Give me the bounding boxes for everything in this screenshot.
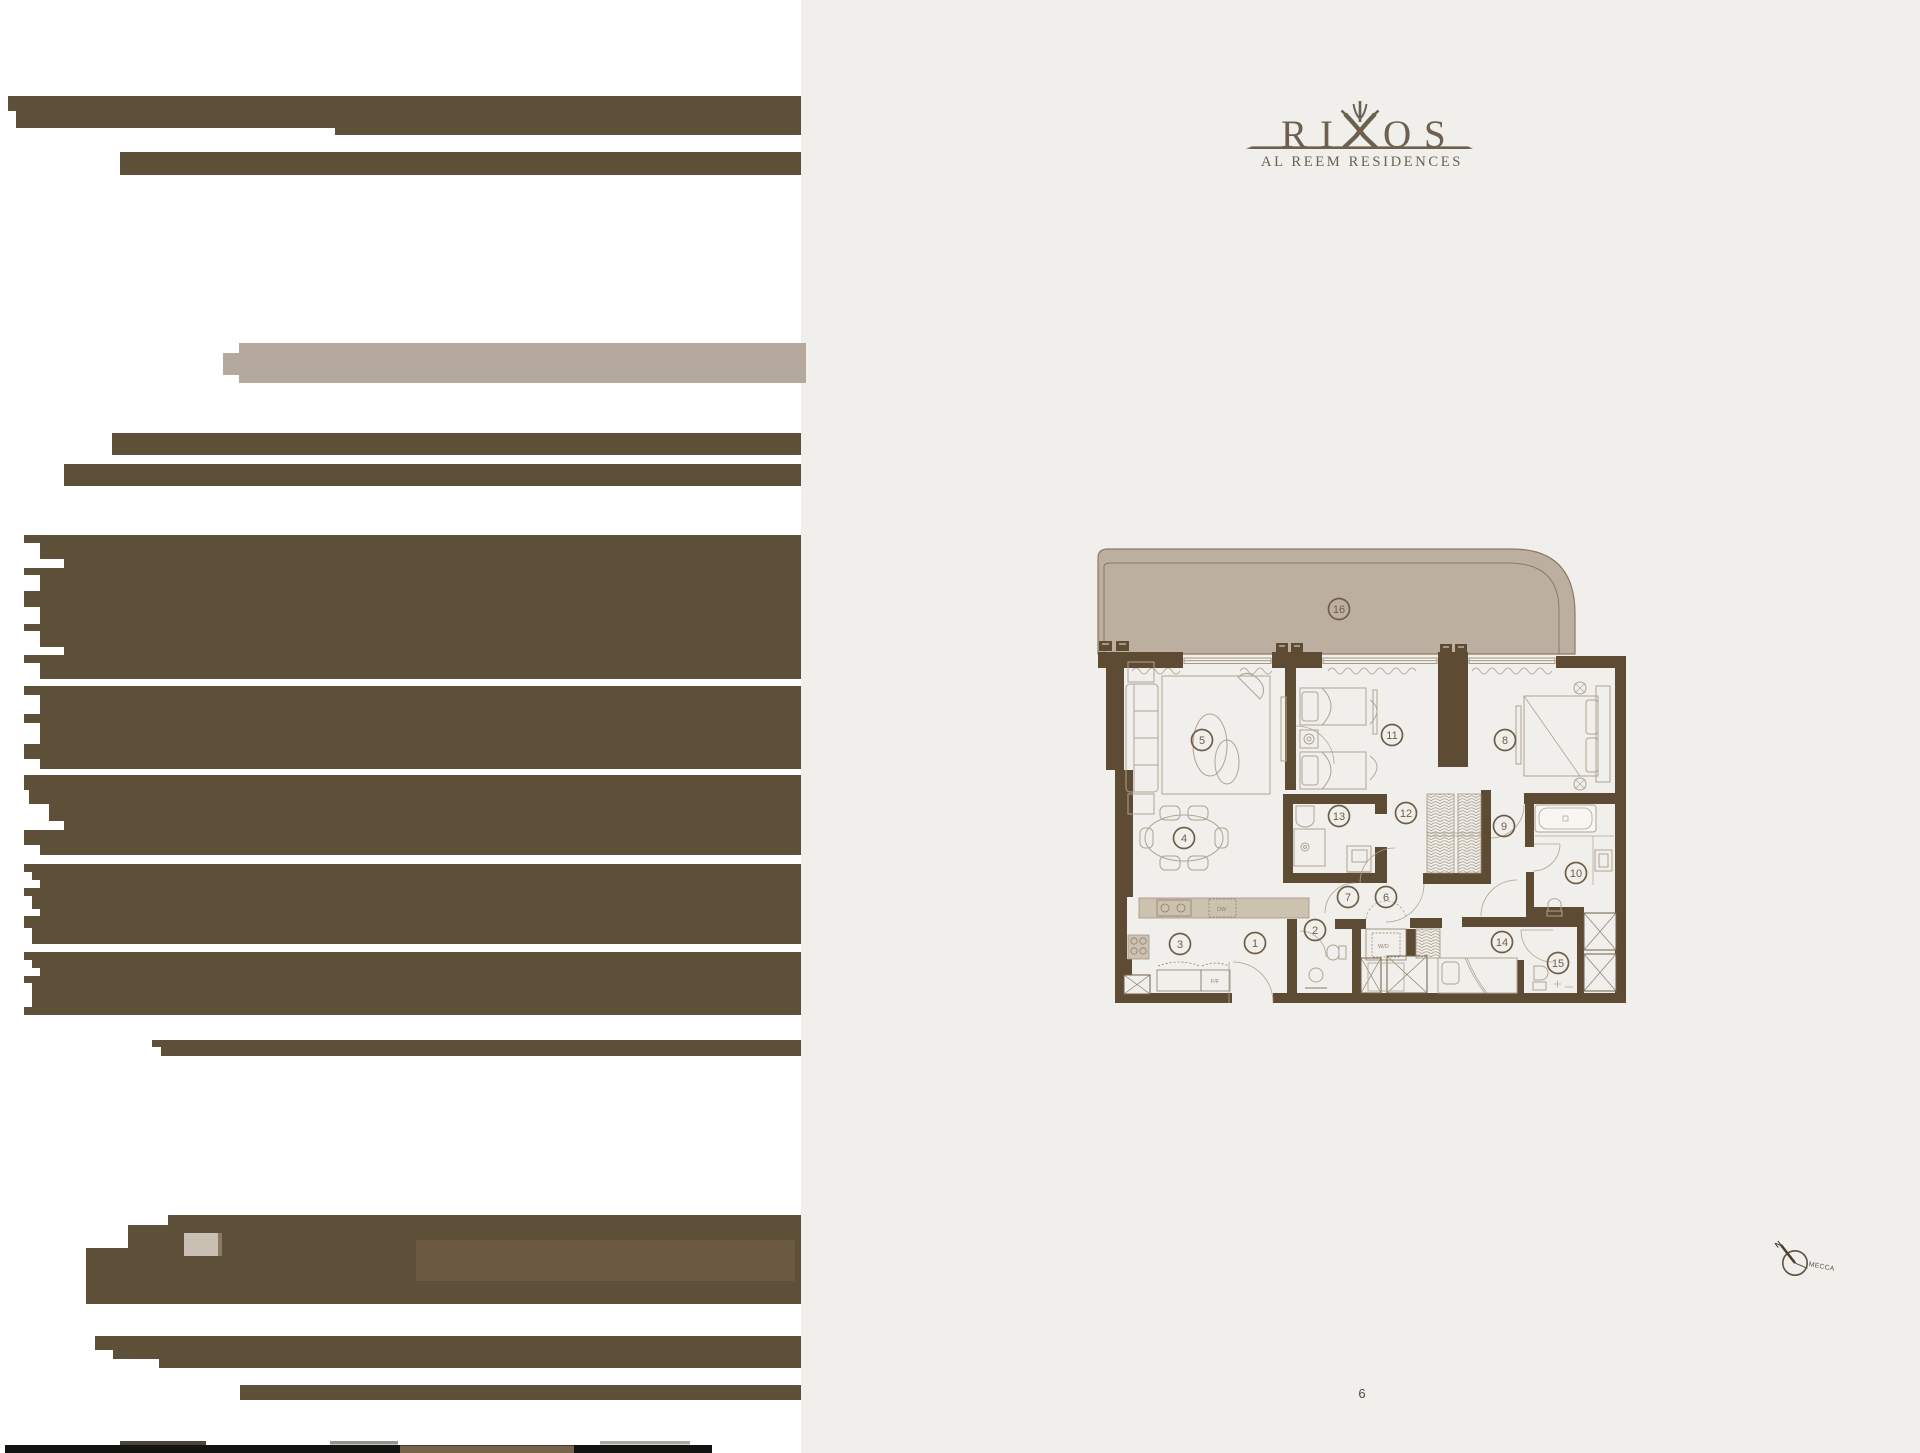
svg-text:R: R — [1281, 113, 1307, 156]
svg-text:DW: DW — [1217, 907, 1227, 913]
svg-text:1: 1 — [1252, 938, 1258, 950]
svg-text:I: I — [1320, 113, 1333, 156]
svg-text:F/F: F/F — [1211, 979, 1220, 985]
svg-text:2: 2 — [1312, 925, 1318, 937]
svg-text:16: 16 — [1333, 604, 1345, 616]
svg-text:15: 15 — [1552, 958, 1564, 970]
svg-text:7: 7 — [1345, 892, 1351, 904]
svg-text:6: 6 — [1383, 892, 1389, 904]
svg-text:13: 13 — [1333, 811, 1345, 823]
svg-text:11: 11 — [1386, 730, 1397, 742]
svg-text:8: 8 — [1502, 735, 1508, 747]
svg-text:14: 14 — [1496, 937, 1508, 949]
svg-text:S: S — [1424, 113, 1446, 156]
svg-text:9: 9 — [1501, 821, 1507, 833]
svg-text:5: 5 — [1199, 735, 1205, 747]
svg-text:3: 3 — [1177, 939, 1183, 951]
svg-text:W/D: W/D — [1378, 944, 1389, 950]
svg-text:MECCA: MECCA — [1808, 1261, 1835, 1273]
svg-text:AL REEM RESIDENCES: AL REEM RESIDENCES — [1261, 154, 1463, 170]
svg-text:12: 12 — [1400, 808, 1412, 820]
svg-text:O: O — [1383, 113, 1411, 156]
svg-text:10: 10 — [1570, 868, 1582, 880]
svg-text:4: 4 — [1181, 833, 1187, 845]
